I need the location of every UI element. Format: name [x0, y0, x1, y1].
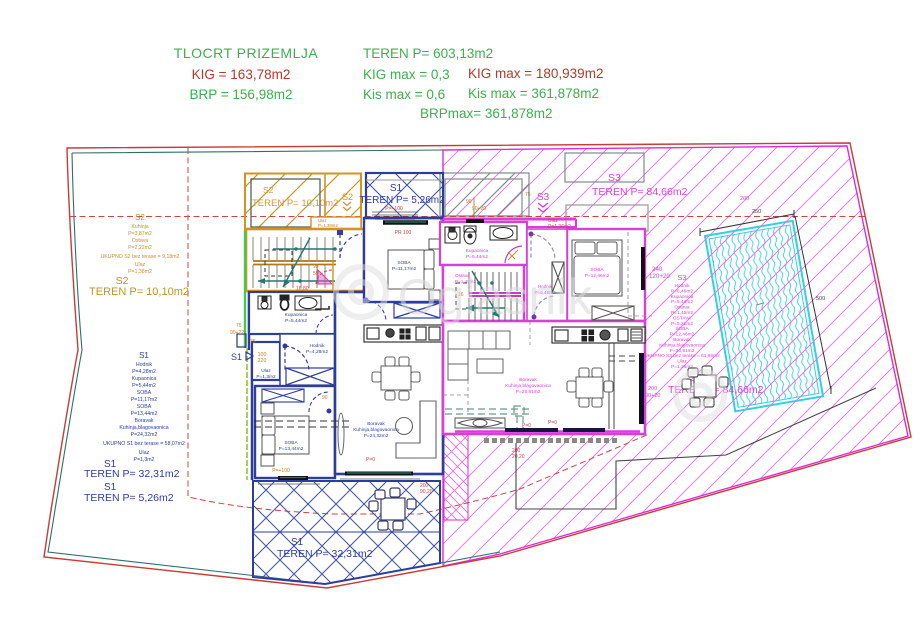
svg-text:KIG max = 0,3: KIG max = 0,3	[363, 67, 450, 82]
svg-text:Hodnik: Hodnik	[136, 362, 153, 368]
svg-text:Kuhinja,blagovaonica: Kuhinja,blagovaonica	[353, 427, 399, 433]
svg-text:P=5,44m2: P=5,44m2	[466, 254, 488, 260]
svg-text:90+20: 90+20	[472, 206, 486, 212]
svg-text:Hodnik: Hodnik	[675, 283, 691, 289]
svg-text:75: 75	[236, 323, 242, 329]
svg-text:P=1,3m2: P=1,3m2	[256, 374, 276, 380]
svg-text:Ostava: Ostava	[674, 305, 690, 311]
svg-text:KIG max = 180,939m2: KIG max = 180,939m2	[468, 66, 603, 81]
svg-text:Ulaz: Ulaz	[139, 450, 150, 456]
svg-text:S2: S2	[342, 192, 353, 202]
svg-text:P=1,36m2: P=1,36m2	[548, 224, 571, 230]
svg-text:P=24,32m2: P=24,32m2	[131, 432, 158, 438]
svg-text:Boravak: Boravak	[367, 421, 385, 427]
svg-text:Kuhinja,blagovaonica: Kuhinja,blagovaonica	[119, 425, 168, 431]
svg-text:P=+100: P=+100	[385, 206, 403, 212]
svg-text:SOBA: SOBA	[397, 260, 411, 266]
svg-text:UKUPNO S1 bez terase = 58,07m2: UKUPNO S1 bez terase = 58,07m2	[103, 441, 185, 447]
svg-text:OSTAVA: OSTAVA	[673, 315, 692, 321]
svg-text:S3: S3	[608, 172, 621, 184]
svg-text:P=13,44m2: P=13,44m2	[279, 446, 304, 452]
svg-text:Kupaonica: Kupaonica	[466, 248, 489, 254]
svg-text:SOBA: SOBA	[137, 404, 152, 410]
svg-text:P=0: P=0	[548, 420, 557, 426]
svg-text:220: 220	[258, 358, 267, 364]
svg-text:SOBA: SOBA	[284, 440, 298, 446]
svg-text:S2: S2	[263, 185, 274, 195]
svg-text:500: 500	[816, 296, 825, 302]
svg-text:Ostava: Ostava	[132, 238, 149, 244]
svg-text:Boravak: Boravak	[134, 418, 153, 424]
svg-text:250: 250	[752, 209, 761, 215]
svg-text:TLOCRT PRIZEMLJA: TLOCRT PRIZEMLJA	[174, 45, 319, 61]
svg-text:S1: S1	[390, 183, 403, 194]
svg-text:PR 100: PR 100	[395, 230, 412, 236]
svg-text:Oglasnik: Oglasnik	[398, 269, 594, 325]
svg-text:90: 90	[322, 395, 328, 401]
svg-text:95: 95	[313, 264, 319, 270]
svg-text:P=33,81m2: P=33,81m2	[670, 348, 695, 354]
svg-text:P=0: P=0	[522, 423, 531, 429]
svg-text:Boravak: Boravak	[673, 337, 691, 343]
svg-text:P=1,45m2: P=1,45m2	[671, 310, 693, 316]
svg-text:KIG = 163,78m2: KIG = 163,78m2	[192, 67, 291, 82]
svg-text:Kis max = 361,878m2: Kis max = 361,878m2	[468, 86, 599, 101]
svg-text:P=5,44m2: P=5,44m2	[285, 318, 307, 324]
svg-text:SOBA: SOBA	[590, 267, 604, 273]
svg-text:90,20: 90,20	[420, 489, 433, 495]
svg-text:S2: S2	[135, 213, 145, 222]
svg-text:TEREN P= 5,26m2: TEREN P= 5,26m2	[84, 492, 174, 504]
svg-text:P=24,32m2: P=24,32m2	[364, 433, 389, 439]
svg-text:UKUPNO S2 bez terase = 9,18m2: UKUPNO S2 bez terase = 9,18m2	[101, 254, 180, 260]
svg-text:BRPmax= 361,878m2: BRPmax= 361,878m2	[420, 106, 552, 121]
svg-text:UKUPNO S3 bez terase = 61,86m2: UKUPNO S3 bez terase = 61,86m2	[644, 353, 720, 359]
svg-text:240: 240	[652, 266, 663, 273]
svg-text:P=0: P=0	[366, 457, 375, 463]
svg-text:Kuhinja,blagovaonica: Kuhinja,blagovaonica	[505, 383, 551, 389]
svg-text:SOBA: SOBA	[675, 326, 689, 332]
svg-text:P=1,38m2: P=1,38m2	[128, 269, 152, 275]
svg-text:TEREN P= 5,26m2: TEREN P= 5,26m2	[359, 195, 445, 206]
svg-text:TEREN P= 32,31m2: TEREN P= 32,31m2	[277, 548, 373, 560]
svg-text:TEREN P= 32,31m2: TEREN P= 32,31m2	[84, 468, 180, 480]
svg-text:P=2,22m2: P=2,22m2	[128, 245, 152, 251]
svg-text:90: 90	[466, 199, 472, 205]
svg-text:P=4,28m2: P=4,28m2	[306, 349, 328, 355]
svg-text:BRP = 156,98m2: BRP = 156,98m2	[190, 87, 293, 102]
svg-text:P=28,81m2: P=28,81m2	[516, 389, 541, 395]
svg-text:TEREN P= 603,13m2: TEREN P= 603,13m2	[363, 46, 493, 61]
svg-text:P=4,28m2: P=4,28m2	[132, 369, 156, 375]
svg-text:200: 200	[648, 386, 657, 392]
svg-text:75: 75	[525, 192, 531, 198]
svg-text:S3: S3	[677, 273, 686, 282]
svg-text:S1: S1	[231, 352, 242, 362]
svg-text:P=5,44m2: P=5,44m2	[671, 299, 693, 305]
svg-text:Ulaz: Ulaz	[261, 368, 271, 374]
svg-text:Kupaonica: Kupaonica	[671, 294, 694, 300]
svg-text:75: 75	[250, 339, 256, 345]
svg-text:S1: S1	[139, 351, 149, 360]
svg-text:Kuhinja: Kuhinja	[131, 224, 148, 230]
svg-text:16,80: 16,80	[296, 286, 309, 292]
svg-text:90+20: 90+20	[645, 393, 660, 399]
svg-text:P=3,87m2: P=3,87m2	[128, 231, 152, 237]
svg-text:P=1,38m2: P=1,38m2	[318, 223, 338, 228]
svg-text:P=5,21m2: P=5,21m2	[671, 321, 693, 327]
svg-text:90+22: 90+22	[230, 330, 244, 336]
svg-text:P=5,44m2: P=5,44m2	[132, 383, 156, 389]
svg-text:P=6,46m2: P=6,46m2	[671, 288, 693, 294]
svg-text:Kupaonica: Kupaonica	[132, 376, 157, 382]
svg-text:P=12,46m2: P=12,46m2	[670, 332, 695, 338]
svg-text:55: 55	[313, 271, 319, 277]
svg-text:Kupaonica: Kupaonica	[285, 312, 308, 318]
svg-text:TEREN P= 10,10m2: TEREN P= 10,10m2	[252, 198, 338, 209]
svg-text:Ulaz: Ulaz	[677, 359, 687, 365]
svg-text:SOBA: SOBA	[137, 390, 152, 396]
svg-text:S1: S1	[291, 537, 304, 548]
svg-text:P=+100: P=+100	[272, 468, 290, 474]
svg-text:Kis max = 0,6: Kis max = 0,6	[363, 87, 445, 102]
svg-text:P=13,44m2: P=13,44m2	[131, 411, 158, 417]
svg-text:200: 200	[740, 196, 749, 202]
svg-text:Ulaz: Ulaz	[135, 262, 146, 268]
svg-text:Hodnik: Hodnik	[310, 343, 326, 349]
svg-text:TEREN P= 84,66m2: TEREN P= 84,66m2	[592, 186, 688, 198]
svg-text:P=11,17m2: P=11,17m2	[131, 397, 157, 403]
svg-text:120+20: 120+20	[649, 273, 670, 280]
svg-text:TEREN P= 10,10m2: TEREN P= 10,10m2	[89, 286, 189, 298]
svg-text:Boravak: Boravak	[519, 377, 537, 383]
svg-text:P=1,3m2: P=1,3m2	[134, 457, 155, 463]
svg-text:S3: S3	[537, 192, 550, 203]
svg-text:20,20: 20,20	[512, 454, 525, 460]
svg-text:Kuhinja,blagovaonica: Kuhinja,blagovaonica	[659, 342, 705, 348]
